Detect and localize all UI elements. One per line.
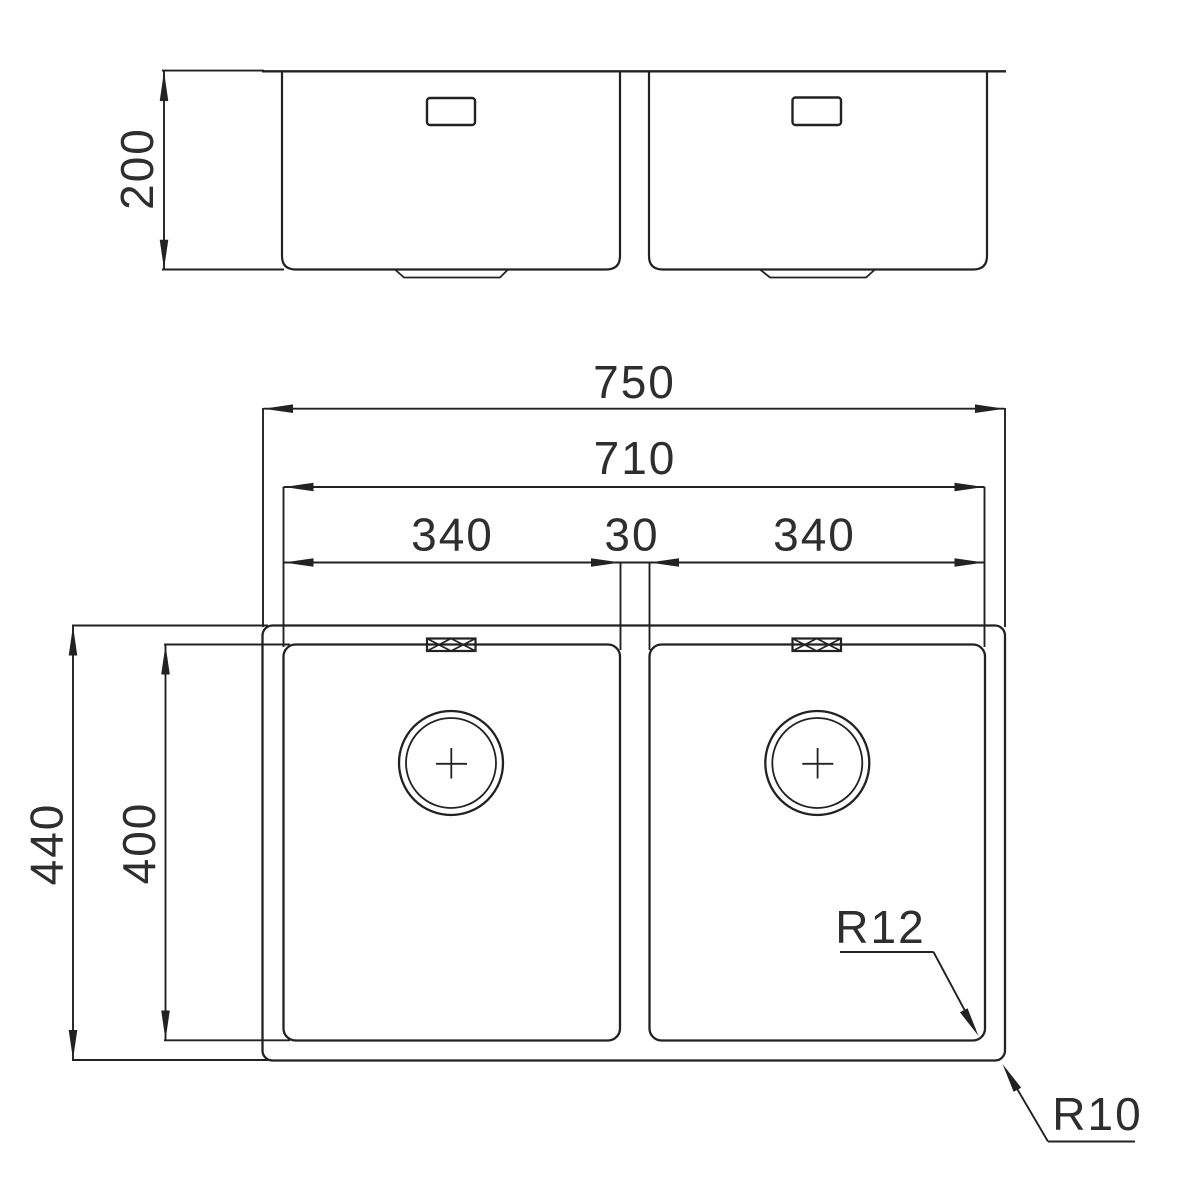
svg-text:340: 340	[773, 509, 856, 561]
svg-text:R12: R12	[835, 901, 925, 953]
svg-text:710: 710	[594, 432, 677, 484]
svg-text:340: 340	[411, 509, 494, 561]
svg-text:30: 30	[604, 509, 659, 561]
svg-text:200: 200	[111, 127, 163, 210]
svg-text:R10: R10	[1052, 1088, 1142, 1140]
svg-text:750: 750	[593, 356, 676, 408]
svg-text:400: 400	[113, 802, 165, 885]
svg-text:440: 440	[21, 803, 73, 886]
